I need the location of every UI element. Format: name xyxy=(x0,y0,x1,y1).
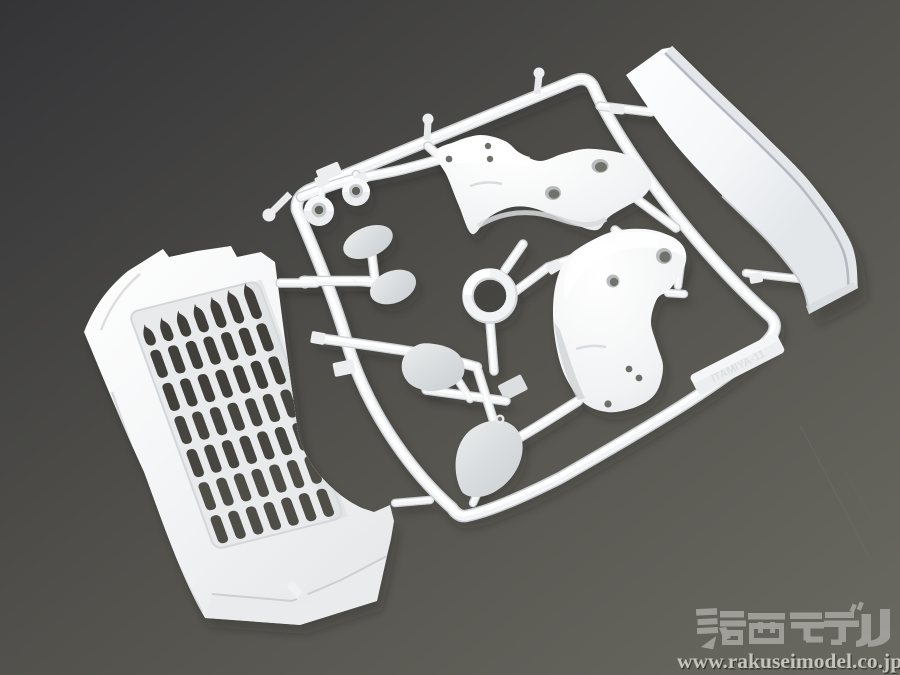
svg-text:www.rakuseimodel.co.jp: www.rakuseimodel.co.jp xyxy=(677,649,900,673)
